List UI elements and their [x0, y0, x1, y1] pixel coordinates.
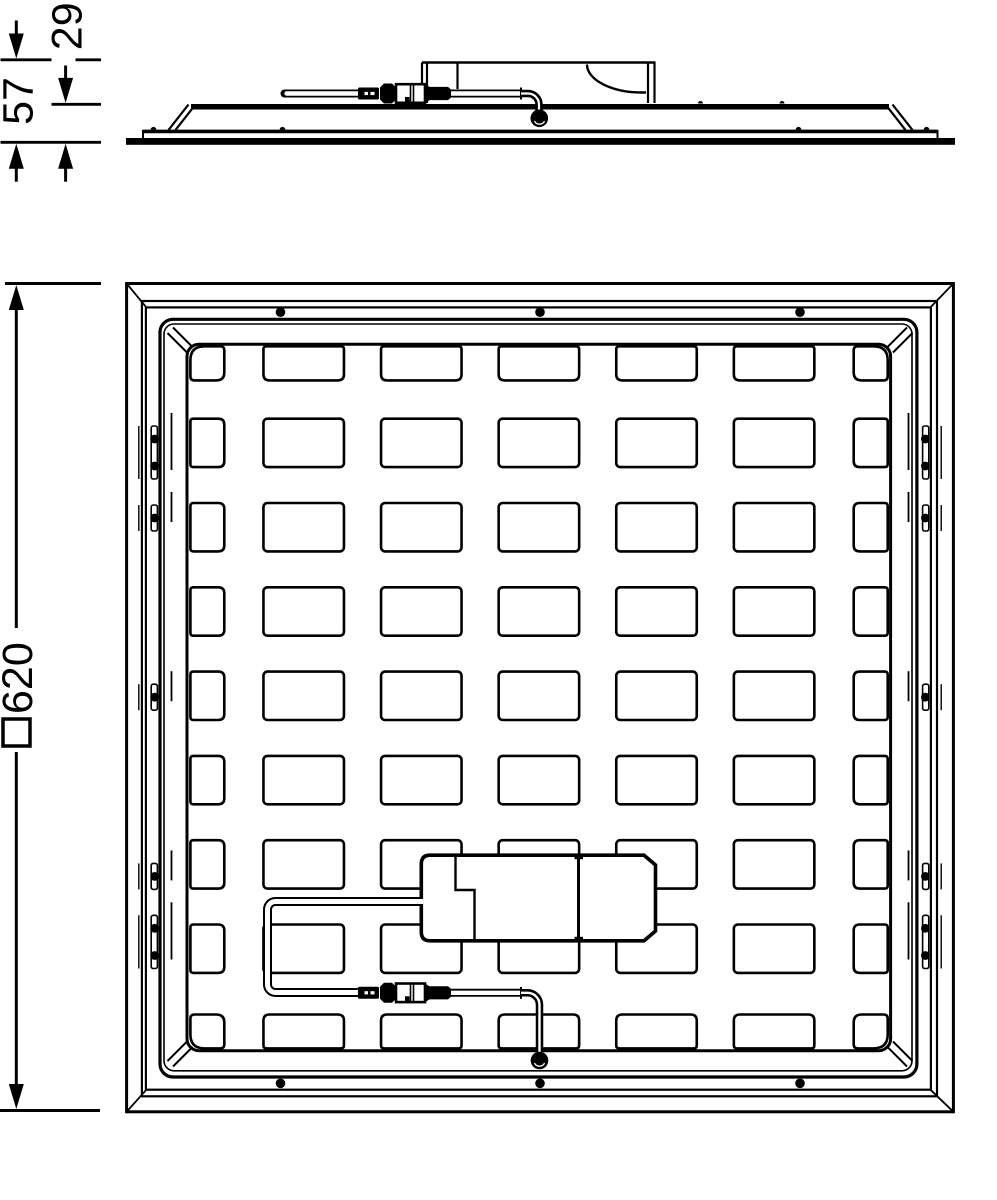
svg-text:620: 620: [0, 642, 42, 714]
svg-text:57: 57: [0, 77, 43, 125]
svg-text:29: 29: [44, 2, 92, 50]
